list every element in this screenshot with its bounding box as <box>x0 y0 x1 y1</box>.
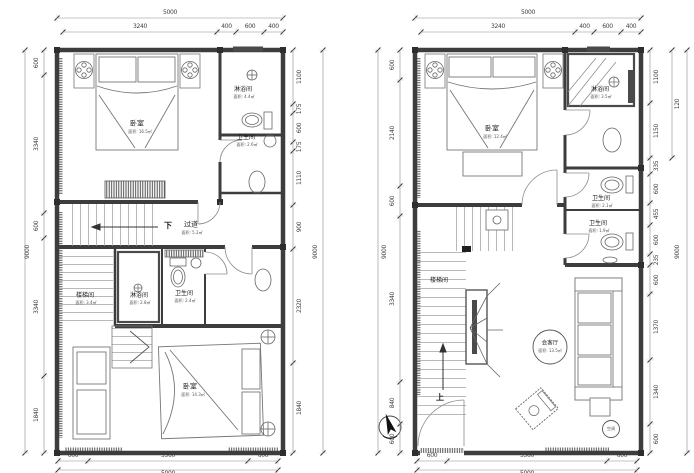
room-area-stair-mid: 面积: 3.4㎡ <box>76 301 97 305</box>
bed-icon <box>158 343 263 439</box>
sink-icon <box>264 135 276 147</box>
dimension-label: 9000 <box>25 244 31 258</box>
dimension-label: 600 <box>68 453 79 459</box>
door-arc <box>198 202 220 224</box>
dimension-label: 120 <box>675 99 681 110</box>
stairs-icon <box>68 204 160 246</box>
sink-icon <box>255 269 271 291</box>
room-area-bedroom-top: 面积: 16.5㎡ <box>128 130 152 134</box>
dimension-label: 600 <box>654 274 660 285</box>
dimension-label: 400 <box>579 24 590 30</box>
window-hatch <box>228 448 278 453</box>
bed-icon <box>96 54 178 150</box>
dimension-label: 600 <box>602 24 613 30</box>
wall-hatch <box>58 58 63 195</box>
dimension-label: 600 <box>654 433 660 444</box>
winder-stairs-icon <box>466 283 503 377</box>
dimension-label: 600 <box>34 220 40 231</box>
dimension-label: 9000 <box>675 244 681 258</box>
room-area-bedroom-bottom: 面积: 14.3㎡ <box>181 393 205 397</box>
direction-label-down: 下 <box>164 222 172 230</box>
room-label-bath-upper: 卫生间 <box>592 196 610 202</box>
stair-post <box>462 246 471 252</box>
room-label-bedroom-bottom: 卧室 <box>183 384 197 391</box>
dimension-label: 1370 <box>654 320 660 334</box>
room-label-shower: 淋浴间 <box>591 87 609 93</box>
room-area-bath-mid: 面积: 2.4㎡ <box>175 299 196 303</box>
dimension-label: 9000 <box>313 244 319 258</box>
room-area-living: 面积: 13.5㎡ <box>538 349 562 353</box>
direction-label-up: 上 <box>436 394 444 402</box>
room-label-bedroom: 卧室 <box>485 126 499 133</box>
window-bar <box>587 47 610 52</box>
room-area-shower-top: 面积: 4.4㎡ <box>234 95 255 99</box>
dimension-label: 2320 <box>297 299 303 313</box>
dimension-label: 5000 <box>163 10 177 16</box>
toilet-icon <box>601 233 633 263</box>
dimension-label: 600 <box>297 122 303 133</box>
toilet-icon <box>601 176 633 193</box>
dimension-label: 600 <box>390 433 396 444</box>
window-bar <box>233 47 263 52</box>
room-area-shower: 面积: 3.5㎡ <box>591 95 612 99</box>
dimension-label: 600 <box>617 453 628 459</box>
winder-stairs-icon <box>112 326 152 368</box>
sink-icon <box>249 171 265 193</box>
dimension-label: 900 <box>297 222 303 233</box>
left-plan-doors <box>198 140 252 274</box>
floorplan-canvas: 卧室 面积: 16.5㎡ 淋浴间 面积: 4.4㎡ 卫生间 面积: 2.6㎡ 下… <box>0 0 694 473</box>
dimension-label: 175 <box>297 103 303 114</box>
dimension-label: 1100 <box>297 70 303 84</box>
dimension-label: 1100 <box>654 69 660 83</box>
ac-label: 空调 <box>607 427 615 431</box>
sofa-icon <box>575 278 622 400</box>
stairs-icon <box>59 249 113 325</box>
room-label-stair: 楼梯间 <box>430 278 448 284</box>
landing-sink-icon <box>486 210 508 230</box>
dimension-label: 3240 <box>133 24 147 30</box>
dimension-label: 600 <box>245 24 256 30</box>
right-plan <box>412 47 644 457</box>
dimension-label: 235 <box>654 254 660 265</box>
room-area-shower-mid: 面积: 2.8㎡ <box>130 301 151 305</box>
left-plan <box>54 47 286 457</box>
room-label-living: 会客厅 <box>542 341 559 347</box>
dimension-label: 600 <box>34 57 40 68</box>
dimension-label: 175 <box>297 141 303 152</box>
sink-icon <box>603 128 621 152</box>
dimension-label: 1840 <box>297 401 303 415</box>
wall-hatch <box>416 58 421 198</box>
dimension-label: 3560 <box>161 453 175 459</box>
dimension-label: 1340 <box>654 385 660 399</box>
dimension-label: 3340 <box>390 292 396 306</box>
dimension-label: 455 <box>654 209 660 220</box>
dimension-label: 600 <box>654 234 660 245</box>
shower-head-icon <box>247 70 257 80</box>
dimension-label: 400 <box>626 24 637 30</box>
dimension-label: 600 <box>258 453 269 459</box>
room-label-bath-lower: 卫生间 <box>589 221 607 227</box>
dimension-label: 9000 <box>382 244 388 258</box>
toilet-icon <box>165 250 203 287</box>
dimension-label: 600 <box>427 453 438 459</box>
wardrobe-icon <box>105 181 165 198</box>
dimension-label: 1840 <box>34 407 40 421</box>
shower-cabin-icon <box>118 252 159 322</box>
dimension-label: 3340 <box>34 137 40 151</box>
window-hatch <box>545 448 609 453</box>
dimension-label: 1110 <box>297 171 303 185</box>
wardrobe-icon <box>73 347 110 439</box>
room-label-bedroom-top: 卧室 <box>130 121 144 128</box>
toilet-icon <box>242 112 272 129</box>
room-area-bath-upper: 面积: 2.1㎡ <box>592 204 613 208</box>
room-label-shower-top: 淋浴间 <box>234 87 252 93</box>
floorplan-drawing <box>0 0 694 473</box>
door-arc <box>565 110 590 135</box>
room-area-bath-lower: 面积: 1.9㎡ <box>589 229 610 233</box>
dimension-label: 600 <box>390 196 396 207</box>
room-area-corridor: 面积: 5.2㎡ <box>182 231 203 235</box>
room-area-bath-top: 面积: 2.6㎡ <box>237 143 258 147</box>
door-arc <box>565 173 589 197</box>
door-arc <box>565 234 589 258</box>
table-icon <box>590 398 610 416</box>
dimension-label: 600 <box>390 60 396 71</box>
room-label-shower-mid: 淋浴间 <box>130 293 148 299</box>
room-label-bath-mid: 卫生间 <box>175 291 193 297</box>
armchair-icon <box>516 388 559 430</box>
door-arc <box>205 252 227 274</box>
dimension-label: 1150 <box>654 123 660 137</box>
dimension-label: 3340 <box>34 300 40 314</box>
dimension-label: 400 <box>221 24 232 30</box>
room-label-corridor: 过道 <box>184 222 198 229</box>
room-label-bath-top: 卫生间 <box>237 135 255 141</box>
dimension-label: 840 <box>390 398 396 409</box>
dimension-label: 3240 <box>491 24 505 30</box>
room-label-circle <box>533 330 567 364</box>
door-arc <box>225 247 252 274</box>
dimension-label: 3560 <box>520 453 534 459</box>
dimension-label: 5000 <box>521 10 535 16</box>
door-arc <box>522 170 557 205</box>
dimension-label: 335 <box>654 161 660 172</box>
bed-icon <box>447 54 537 176</box>
dimension-label: 2140 <box>390 126 396 140</box>
room-area-bedroom: 面积: 12.4㎡ <box>483 135 507 139</box>
room-label-stair-mid: 楼梯间 <box>76 293 94 299</box>
dimension-label: 600 <box>654 183 660 194</box>
dimension-label: 400 <box>268 24 279 30</box>
